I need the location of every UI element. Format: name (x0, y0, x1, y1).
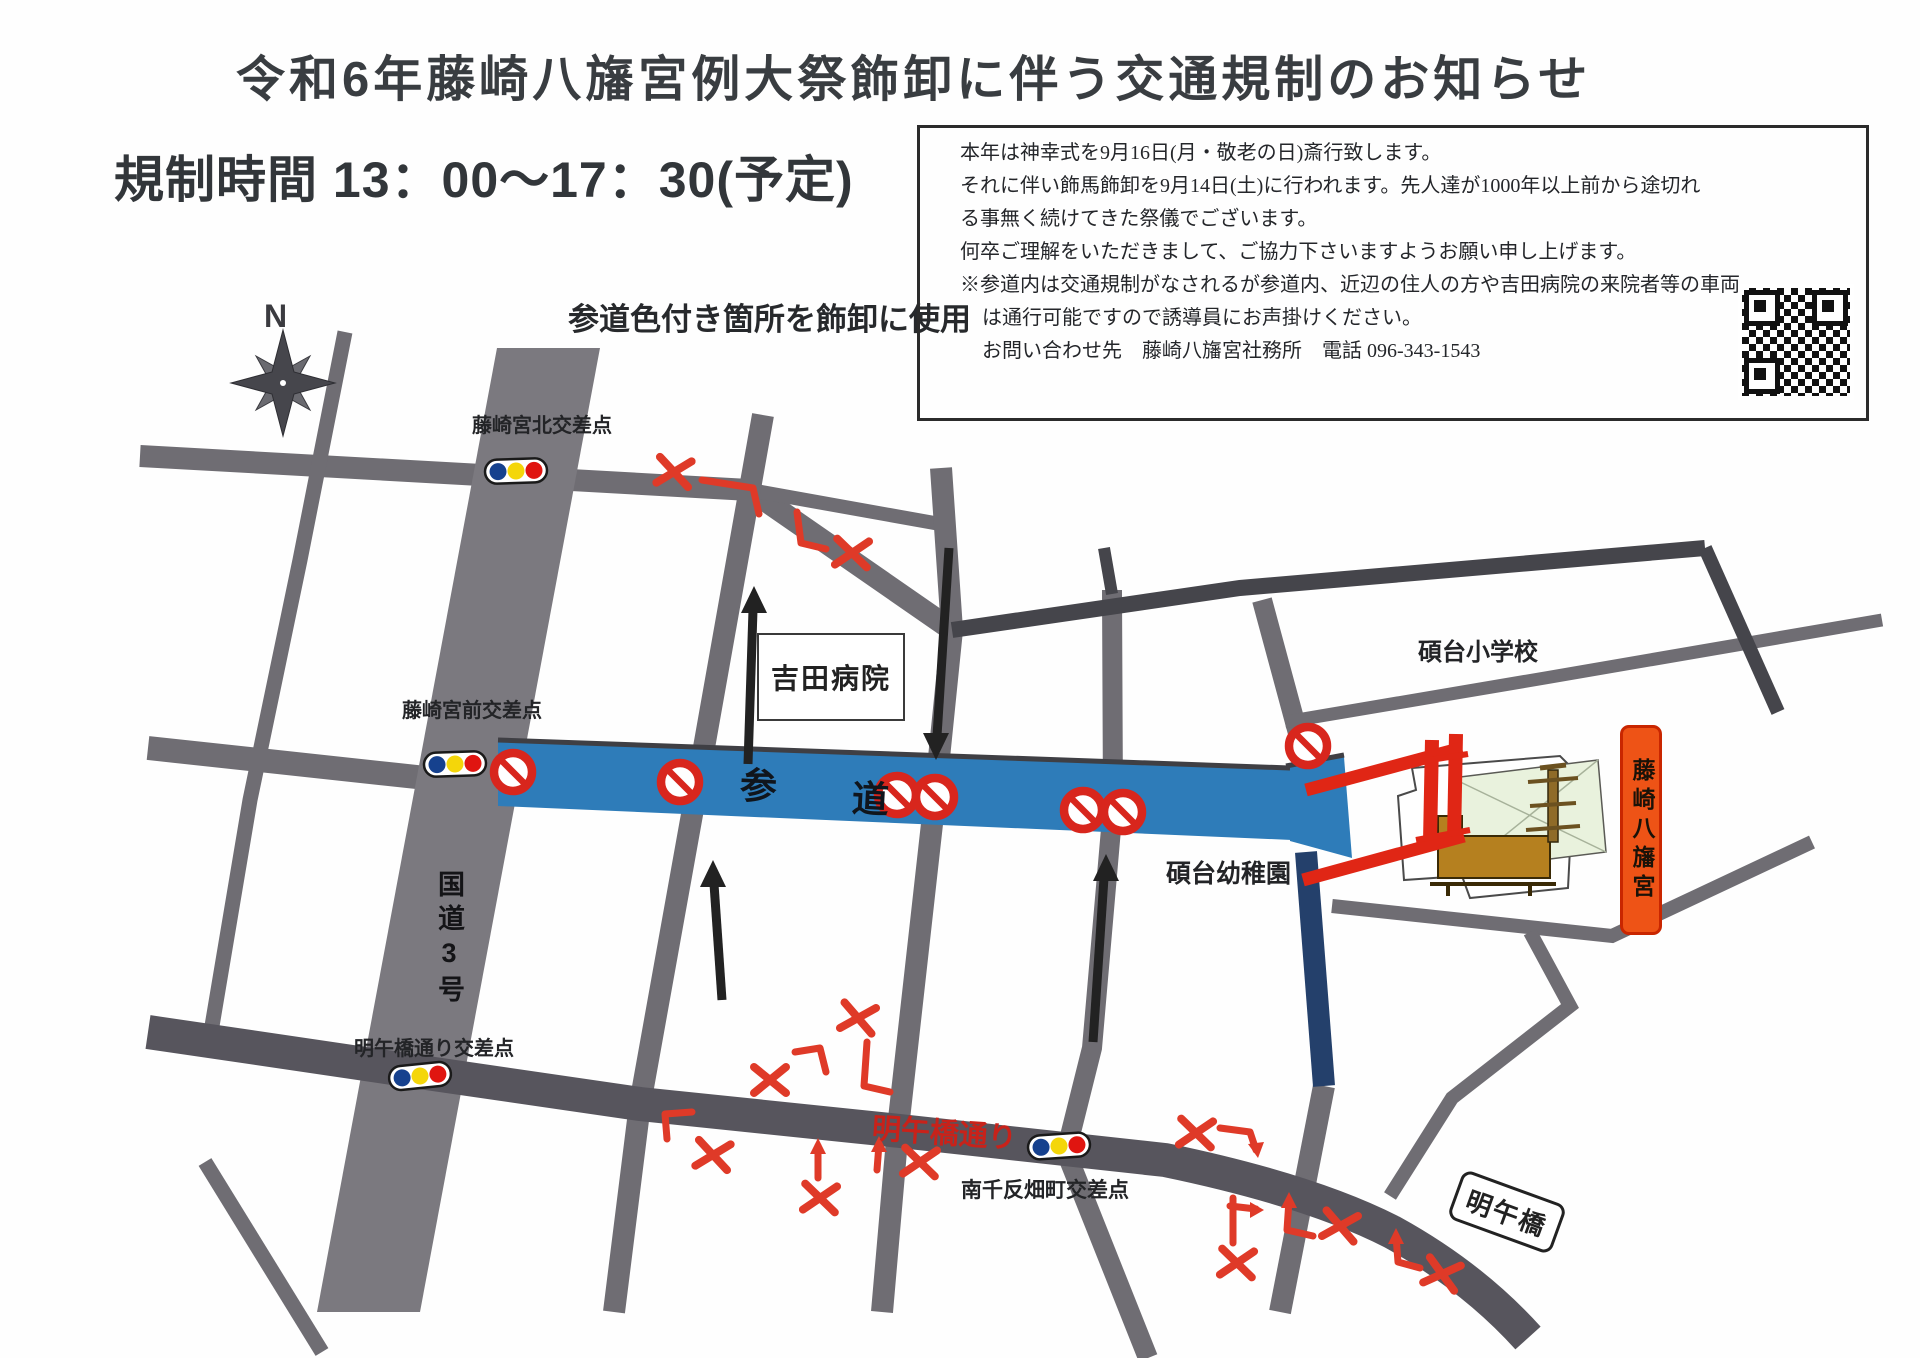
no-entry-sign-icon (1104, 793, 1142, 831)
intersection-label-fujisakigu-front: 藤崎宮前交差点 (402, 694, 542, 723)
notice-line: は通行可能ですので誘導員にお声掛けください。 (960, 302, 1866, 335)
fujisaki-hachimangu-label-text: 藤崎八旛宮 (1624, 758, 1658, 903)
restricted-navy-segment (1306, 852, 1324, 1086)
closure-marker (754, 1048, 826, 1093)
qr-finder (1744, 358, 1780, 394)
sando-road-label-2: 道 (851, 768, 891, 824)
notice-line: 何卒ご理解をいただきまして、ご協力下さいますようお願い申し上げます。 (960, 236, 1866, 269)
traffic-signal-icon (424, 751, 487, 777)
qr-finder (1812, 290, 1848, 326)
route3-road-label: 国道3号 (430, 870, 469, 1009)
intersection-label-minamisentanbata: 南千反畑町交差点 (961, 1174, 1129, 1204)
traffic-notice-page: 令和6年藤崎八旛宮例大祭飾卸に伴う交通規制のお知らせ 規制時間 13：00～17… (0, 0, 1920, 1358)
notice-line: お問い合わせ先 藤崎八旛宮社務所 電話 096-343-1543 (960, 335, 1866, 368)
no-entry-sign-icon (1289, 727, 1327, 765)
page-title: 令和6年藤崎八旛宮例大祭飾卸に伴う交通規制のお知らせ (236, 40, 1591, 111)
closure-marker (1220, 1198, 1264, 1277)
notice-box: 本年は神幸式を9月16日(月・敬老の日)斎行致します。 それに伴い飾馬飾卸を9月… (917, 125, 1869, 421)
traffic-signal-icon (1027, 1132, 1091, 1160)
qr-code-icon (1742, 288, 1850, 396)
closure-marker (803, 1138, 837, 1212)
road-southeast-2 (1390, 932, 1570, 1196)
road-bottom-left-diagonal (205, 1162, 322, 1352)
road-left-vertical-thin (212, 332, 345, 1026)
notice-line: 本年は神幸式を9月16日(月・敬老の日)斎行致します。 (960, 137, 1866, 170)
map-legend-note: 参道色付き箇所を飾卸に使用 (568, 294, 971, 339)
fujisaki-hachimangu-label: 藤崎八旛宮 (1620, 725, 1662, 935)
road-hospital-street (614, 415, 763, 1312)
yoshida-hospital-label: 吉田病院 (757, 633, 905, 721)
no-entry-sign-icon (1064, 791, 1102, 829)
sekidai-elementary-label: 碩台小学校 (1418, 632, 1538, 667)
no-entry-sign-icon (494, 753, 532, 791)
compass-rose-icon (231, 330, 335, 436)
no-entry-sign-icon (661, 763, 699, 801)
road-dark-block (952, 548, 1778, 712)
notice-line: る事無く続けてきた祭儀でございます。 (960, 203, 1866, 236)
closure-marker (840, 1002, 890, 1092)
compass-north-label: N (264, 298, 287, 335)
restriction-time: 規制時間 13：00～17：30(予定) (114, 140, 854, 212)
no-entry-sign-icon (916, 778, 954, 816)
notice-line: それに伴い飾馬飾卸を9月14日(土)に行われます。先人達が1000年以上前から途… (960, 170, 1866, 203)
notice-line: ※参道内は交通規制がなされるが参道内、近辺の住人の方や吉田病院の来院者等の車両 (960, 269, 1866, 302)
qr-finder (1744, 290, 1780, 326)
up-arrow-south-hospital-street (700, 860, 726, 1000)
intersection-label-meigobashi-street: 明午橋通り交差点 (354, 1032, 514, 1061)
sando-road-label-1: 参 (739, 755, 779, 811)
road-route3-band (317, 348, 600, 1312)
road-elementary-east (1285, 620, 1882, 722)
traffic-signal-icon (388, 1061, 452, 1091)
sekidai-kindergarten-label: 碩台幼稚園 (1166, 854, 1291, 890)
traffic-signal-icon (485, 458, 548, 484)
intersection-label-fujisakigu-north: 藤崎宮北交差点 (472, 409, 612, 438)
